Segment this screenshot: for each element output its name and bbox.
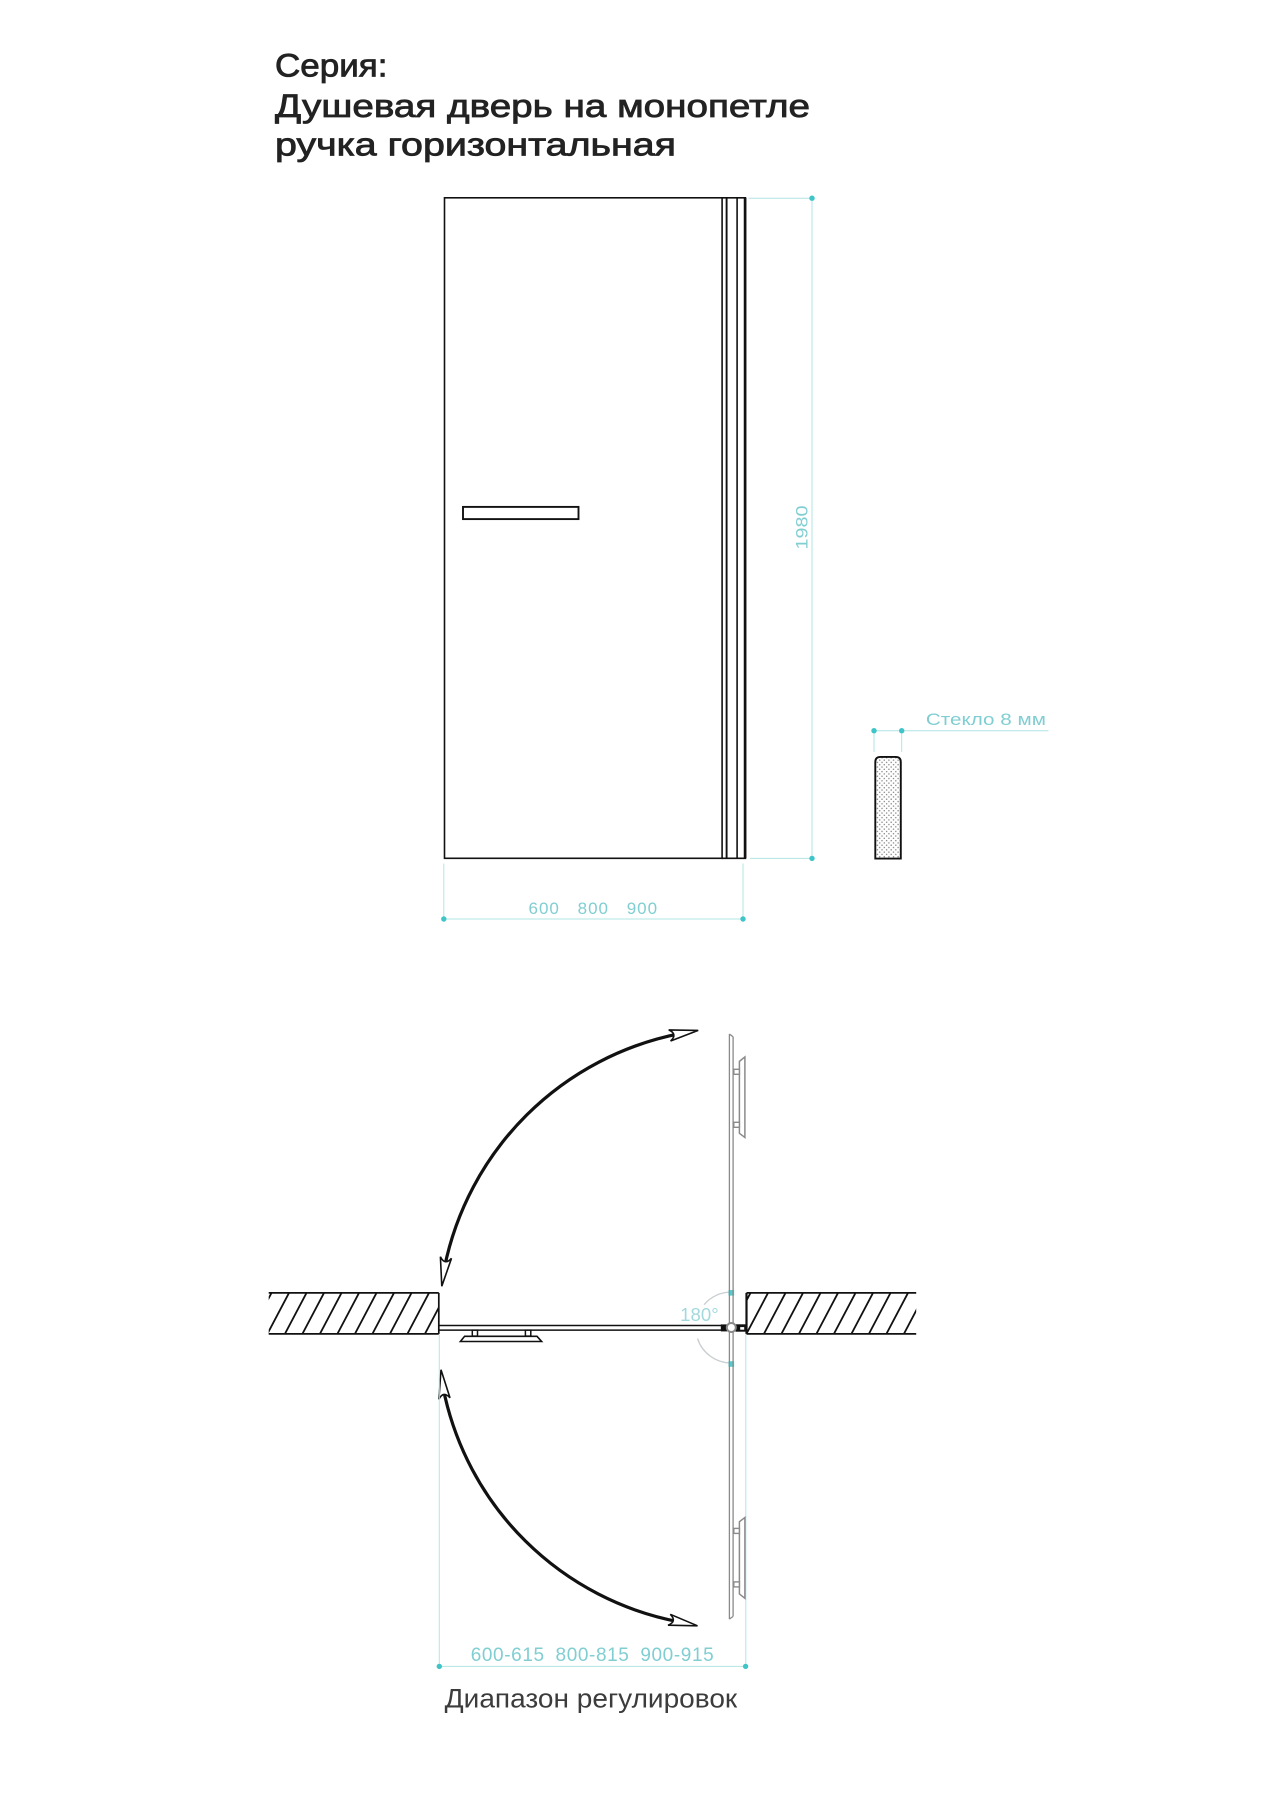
svg-text:600-615 800-815 900-915: 600-615 800-815 900-915	[471, 1645, 715, 1666]
svg-text:Душевая дверь на монопетле: Душевая дверь на монопетле	[275, 88, 810, 124]
svg-text:1980: 1980	[793, 506, 812, 550]
svg-text:Диапазон регулировок: Диапазон регулировок	[445, 1683, 738, 1713]
svg-text:180°: 180°	[680, 1304, 719, 1325]
svg-text:Серия:: Серия:	[275, 47, 388, 83]
svg-text:Стекло 8 мм: Стекло 8 мм	[926, 710, 1046, 729]
svg-text:ручка горизонтальная: ручка горизонтальная	[275, 127, 676, 163]
svg-text:600 800 900: 600 800 900	[529, 899, 659, 918]
